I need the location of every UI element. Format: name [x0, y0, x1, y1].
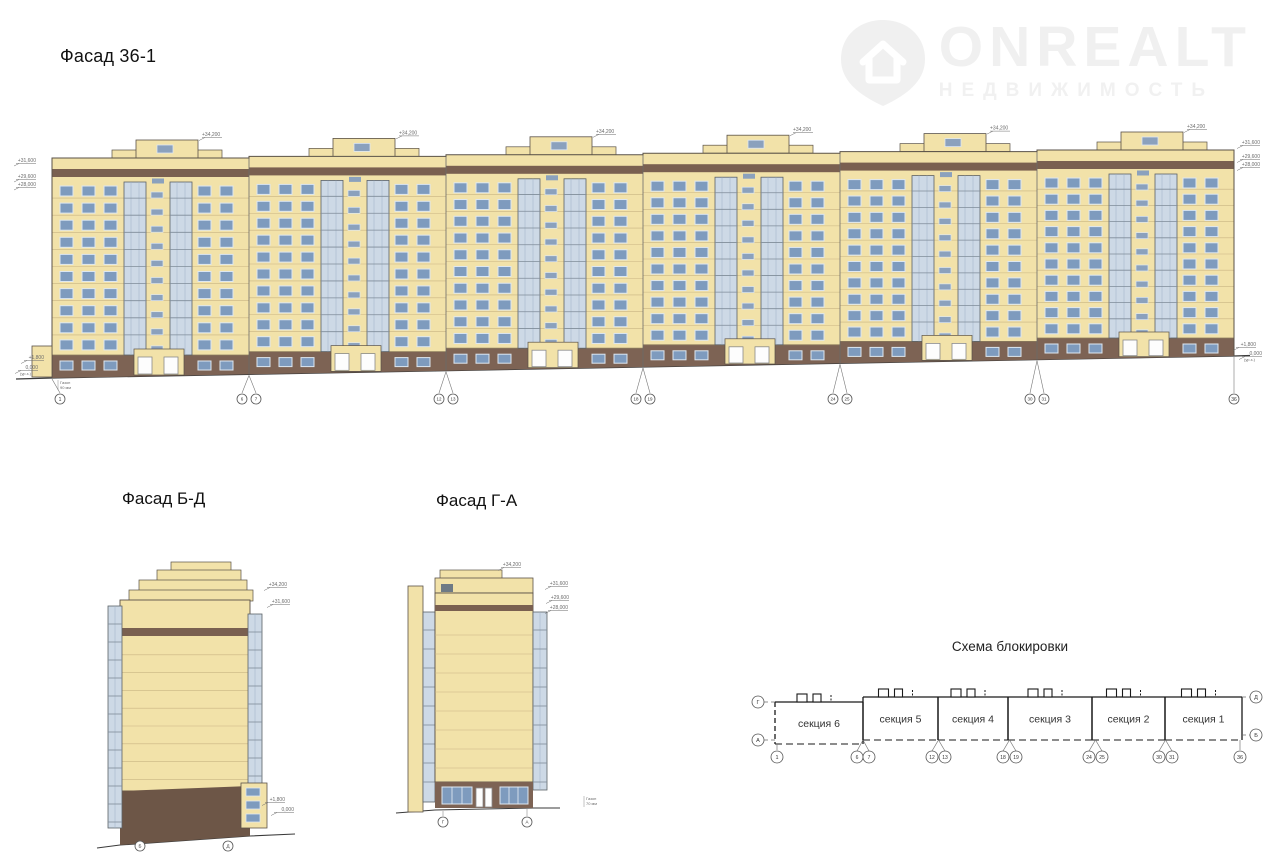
axis-label: 6	[856, 755, 859, 761]
stair-window	[742, 187, 754, 193]
scheme-bump	[1182, 689, 1192, 697]
window	[986, 196, 999, 206]
window	[220, 289, 233, 299]
window	[498, 233, 511, 243]
window	[498, 267, 511, 277]
scheme-bump	[1123, 689, 1131, 697]
scheme-bump	[1198, 689, 1206, 697]
elevation-label: (ур.з.)	[20, 371, 32, 376]
window	[614, 183, 627, 193]
stair-window	[348, 241, 360, 247]
elevation-label: +34,200	[990, 126, 1008, 132]
axis-label: 12	[929, 755, 935, 761]
window	[1205, 291, 1218, 301]
axis-label: Г	[757, 700, 760, 706]
window	[220, 203, 233, 213]
axis-leader	[249, 375, 256, 393]
entrance-door	[1149, 340, 1163, 356]
window	[476, 300, 489, 310]
elevation-label: +1,800	[1241, 342, 1257, 348]
window	[651, 330, 664, 340]
window	[811, 181, 824, 191]
storefront-window	[500, 787, 528, 804]
balcony-glazing	[912, 176, 934, 342]
window	[651, 247, 664, 257]
elevation-tick	[14, 164, 19, 167]
window	[1008, 278, 1021, 288]
basement-window	[892, 347, 905, 356]
window	[986, 294, 999, 304]
building-section: +34,200	[1037, 124, 1234, 360]
scheme-section-label: секция 3	[1029, 714, 1071, 726]
axis-label: 1	[775, 755, 778, 761]
window	[1008, 212, 1021, 222]
window	[395, 320, 408, 330]
window	[1008, 180, 1021, 190]
window	[592, 283, 605, 293]
window	[695, 198, 708, 208]
window	[789, 297, 802, 307]
window	[1183, 308, 1196, 318]
window	[811, 264, 824, 274]
window	[848, 278, 861, 288]
window	[695, 314, 708, 324]
window	[1067, 243, 1080, 253]
window	[1089, 194, 1102, 204]
axis-leader	[439, 372, 446, 393]
basement-window	[870, 347, 883, 356]
basement-window	[82, 361, 95, 370]
window	[301, 337, 314, 347]
stair-window	[1136, 314, 1148, 320]
watermark-subtitle: НЕДВИЖИМОСТЬ	[939, 80, 1214, 102]
window	[592, 200, 605, 210]
window	[789, 281, 802, 291]
scheme-bump	[797, 694, 807, 702]
stair-window	[348, 309, 360, 315]
window	[104, 220, 117, 230]
balcony-glazing	[1155, 174, 1177, 338]
axis-leader	[939, 740, 946, 751]
window	[220, 186, 233, 196]
basement-window	[1089, 344, 1102, 353]
window	[673, 231, 686, 241]
window	[1089, 324, 1102, 334]
attic-window	[152, 179, 164, 184]
window	[82, 254, 95, 264]
scheme-title: Схема блокировки	[900, 639, 1120, 654]
window	[301, 218, 314, 228]
window	[1205, 210, 1218, 220]
window	[673, 214, 686, 224]
scheme-section-label: секция 4	[952, 714, 994, 726]
entrance-door	[138, 357, 152, 374]
window	[1008, 245, 1021, 255]
stair-window	[1136, 200, 1148, 206]
window	[614, 233, 627, 243]
window	[454, 233, 467, 243]
basement-window	[811, 351, 824, 360]
window	[695, 297, 708, 307]
elevation-label: +29,600	[1242, 154, 1260, 160]
elevation-label: +28,000	[1242, 162, 1260, 168]
axis-leader	[863, 740, 869, 751]
window	[1045, 210, 1058, 220]
window	[673, 181, 686, 191]
axis-leader	[446, 372, 453, 393]
scheme-bump	[1028, 689, 1038, 697]
scheme-bump	[951, 689, 961, 697]
window	[220, 272, 233, 282]
facade-bd-svg: +34,200+31,600+1,8000,000БД	[95, 548, 300, 854]
stair-window	[742, 220, 754, 226]
stair-window	[151, 226, 163, 232]
window	[789, 231, 802, 241]
window	[848, 327, 861, 337]
window	[279, 303, 292, 313]
scheme-section: секция 6	[775, 694, 863, 744]
entrance-door	[476, 788, 483, 807]
window	[1045, 194, 1058, 204]
scheme-section: секция 2	[1092, 689, 1165, 740]
window	[417, 303, 430, 313]
window	[60, 203, 73, 213]
attic-window	[546, 175, 558, 180]
window	[870, 294, 883, 304]
stair-window	[1136, 297, 1148, 303]
brown-band	[840, 163, 1037, 171]
window	[614, 317, 627, 327]
stair-window	[545, 289, 557, 295]
window	[395, 201, 408, 211]
parapet-window	[748, 140, 764, 148]
parapet-step	[129, 590, 253, 601]
window	[892, 245, 905, 255]
basement-window	[498, 354, 511, 363]
stair-window	[939, 300, 951, 306]
entrance-door	[926, 343, 940, 359]
main-facade-svg: +34,200+34,200+34,200+34,200+34,200+34,2…	[14, 116, 1266, 414]
section-body	[435, 593, 533, 782]
window	[1008, 196, 1021, 206]
attic-window	[1137, 171, 1149, 176]
elevation-label: (ур.з.)	[1244, 357, 1256, 362]
window	[198, 289, 211, 299]
balcony-glazing	[715, 177, 737, 345]
window	[476, 250, 489, 260]
window	[1089, 178, 1102, 188]
entrance-door	[361, 354, 375, 371]
window	[614, 333, 627, 343]
window	[614, 200, 627, 210]
window	[1089, 308, 1102, 318]
balcony-glazing	[321, 180, 343, 351]
stair-window	[151, 312, 163, 318]
window	[651, 198, 664, 208]
brown-band	[435, 605, 533, 611]
scheme-section-label: секция 2	[1107, 714, 1149, 726]
window	[1008, 229, 1021, 239]
window	[1205, 324, 1218, 334]
basement-window	[395, 358, 408, 367]
axis-label: 13	[450, 397, 456, 402]
parapet-window	[157, 145, 173, 153]
window	[789, 314, 802, 324]
window	[104, 237, 117, 247]
window	[257, 320, 270, 330]
window	[695, 264, 708, 274]
window	[220, 340, 233, 350]
window	[1067, 227, 1080, 237]
window	[673, 330, 686, 340]
window	[892, 262, 905, 272]
axis-label: 25	[1099, 755, 1105, 761]
window	[498, 317, 511, 327]
window	[498, 300, 511, 310]
window	[1183, 259, 1196, 269]
stair-window	[151, 260, 163, 266]
entrance-door	[729, 347, 743, 363]
elevation-label: +1,800	[29, 355, 45, 361]
window	[892, 294, 905, 304]
stair-window	[348, 224, 360, 230]
window	[1183, 210, 1196, 220]
window	[1183, 275, 1196, 285]
axis-label: 25	[844, 397, 850, 402]
stair-window	[545, 206, 557, 212]
window	[1089, 275, 1102, 285]
window	[592, 317, 605, 327]
elevation-tick	[14, 188, 19, 191]
building-section: +34,200	[52, 132, 249, 378]
window	[1045, 291, 1058, 301]
building-section: +34,200	[840, 126, 1037, 364]
window	[417, 235, 430, 245]
facade-bd-drawing: +34,200+31,600+1,8000,000БД	[95, 548, 300, 854]
axis-leader	[1030, 361, 1037, 393]
window	[848, 196, 861, 206]
basement-window	[1067, 344, 1080, 353]
window	[279, 320, 292, 330]
window	[789, 198, 802, 208]
window	[395, 269, 408, 279]
entrance-door	[558, 350, 572, 366]
stair-window	[545, 189, 557, 195]
window	[279, 184, 292, 194]
window	[848, 180, 861, 190]
window	[870, 262, 883, 272]
entrance-door	[485, 788, 492, 807]
window	[892, 180, 905, 190]
axis-leader	[52, 379, 60, 393]
window	[60, 220, 73, 230]
axis-leader	[1010, 740, 1017, 751]
window	[454, 283, 467, 293]
window	[1045, 308, 1058, 318]
window	[811, 297, 824, 307]
window	[198, 237, 211, 247]
window	[476, 233, 489, 243]
window	[1008, 262, 1021, 272]
ground-note: 70 мм	[586, 801, 597, 806]
window	[811, 314, 824, 324]
elevation-label: +34,200	[202, 132, 220, 138]
window	[651, 231, 664, 241]
stair-window	[151, 295, 163, 301]
window	[789, 181, 802, 191]
stair-window	[939, 202, 951, 208]
elevation-label: +29,600	[18, 174, 36, 180]
elevation-tick	[264, 588, 270, 591]
building-section: +34,200	[643, 127, 840, 367]
axis-leader	[242, 375, 249, 393]
window	[1183, 243, 1196, 253]
window	[198, 340, 211, 350]
elevation-tick	[271, 813, 277, 816]
axis-label: 19	[647, 397, 653, 402]
elevation-label: +34,200	[793, 127, 811, 133]
window	[498, 250, 511, 260]
balcony-glazing	[367, 180, 389, 351]
window	[592, 333, 605, 343]
window	[1205, 194, 1218, 204]
scheme-bump	[967, 689, 975, 697]
window	[986, 245, 999, 255]
window	[257, 286, 270, 296]
window	[1205, 275, 1218, 285]
window	[60, 254, 73, 264]
window	[614, 250, 627, 260]
window	[1067, 194, 1080, 204]
window	[892, 311, 905, 321]
window	[892, 278, 905, 288]
axis-label: 13	[942, 755, 948, 761]
elevation-label: +31,600	[18, 158, 36, 164]
axis-label: 31	[1041, 397, 1047, 402]
window	[1008, 311, 1021, 321]
window	[1045, 275, 1058, 285]
window	[651, 264, 664, 274]
balcony-glazing	[423, 612, 435, 802]
window	[104, 203, 117, 213]
stair-window	[939, 317, 951, 323]
window	[395, 218, 408, 228]
scheme-bump	[1044, 689, 1052, 697]
brown-band	[1037, 161, 1234, 169]
window	[811, 281, 824, 291]
scheme-section: секция 5	[863, 689, 938, 740]
elevation-tick	[267, 605, 273, 608]
window	[476, 283, 489, 293]
window	[695, 281, 708, 291]
window	[220, 254, 233, 264]
window	[82, 323, 95, 333]
elevation-label: +28,000	[18, 182, 36, 188]
stair-window	[151, 329, 163, 335]
parapet-step	[139, 580, 247, 591]
axis-label: А	[525, 820, 528, 825]
axis-label: 1	[59, 397, 62, 403]
elevation-tick	[546, 601, 552, 604]
window	[104, 254, 117, 264]
window	[1067, 308, 1080, 318]
window	[417, 218, 430, 228]
stair-window	[939, 235, 951, 241]
window	[695, 247, 708, 257]
window	[1008, 294, 1021, 304]
stair-window	[1136, 216, 1148, 222]
elevation-label: +31,600	[272, 599, 290, 605]
basement-window	[614, 354, 627, 363]
window	[870, 327, 883, 337]
window	[1183, 194, 1196, 204]
building-section: +34,200	[249, 130, 446, 374]
window	[279, 201, 292, 211]
axis-label: 24	[830, 397, 836, 402]
window	[1045, 324, 1058, 334]
window	[257, 252, 270, 262]
window	[651, 214, 664, 224]
window	[82, 306, 95, 316]
entrance-door	[335, 354, 349, 371]
window	[198, 186, 211, 196]
watermark-brand: ONREALT	[939, 18, 1252, 78]
window	[1045, 178, 1058, 188]
window	[257, 184, 270, 194]
entrance-door	[755, 347, 769, 363]
basement-window	[1183, 344, 1196, 353]
window	[986, 262, 999, 272]
parapet-window	[1142, 137, 1158, 145]
stair-window	[742, 237, 754, 243]
window	[592, 183, 605, 193]
window	[811, 214, 824, 224]
axis-label: 7	[868, 755, 871, 761]
window	[220, 306, 233, 316]
window	[1045, 259, 1058, 269]
scheme-section: секция 4	[938, 689, 1008, 740]
window	[673, 264, 686, 274]
window	[1008, 327, 1021, 337]
window	[279, 218, 292, 228]
window	[104, 272, 117, 282]
elevation-label: +34,200	[596, 129, 614, 135]
axis-leader	[1003, 740, 1010, 751]
stair-window	[545, 323, 557, 329]
window	[673, 297, 686, 307]
window	[848, 262, 861, 272]
stair-window	[742, 204, 754, 210]
axis-label: 18	[633, 397, 639, 402]
window	[417, 269, 430, 279]
stair-window	[348, 207, 360, 213]
watermark-text: ONREALT НЕДВИЖИМОСТЬ	[939, 18, 1252, 102]
window	[848, 245, 861, 255]
basement-window	[1205, 344, 1218, 353]
scheme-bump	[895, 689, 903, 697]
window	[592, 267, 605, 277]
window	[1183, 178, 1196, 188]
axis-leader	[833, 364, 840, 393]
window	[60, 289, 73, 299]
window	[592, 216, 605, 226]
window	[198, 306, 211, 316]
window	[892, 229, 905, 239]
window	[220, 323, 233, 333]
page-title: Фасад 36-1	[60, 46, 156, 67]
left-wing	[408, 586, 423, 812]
basement-window	[1045, 344, 1058, 353]
